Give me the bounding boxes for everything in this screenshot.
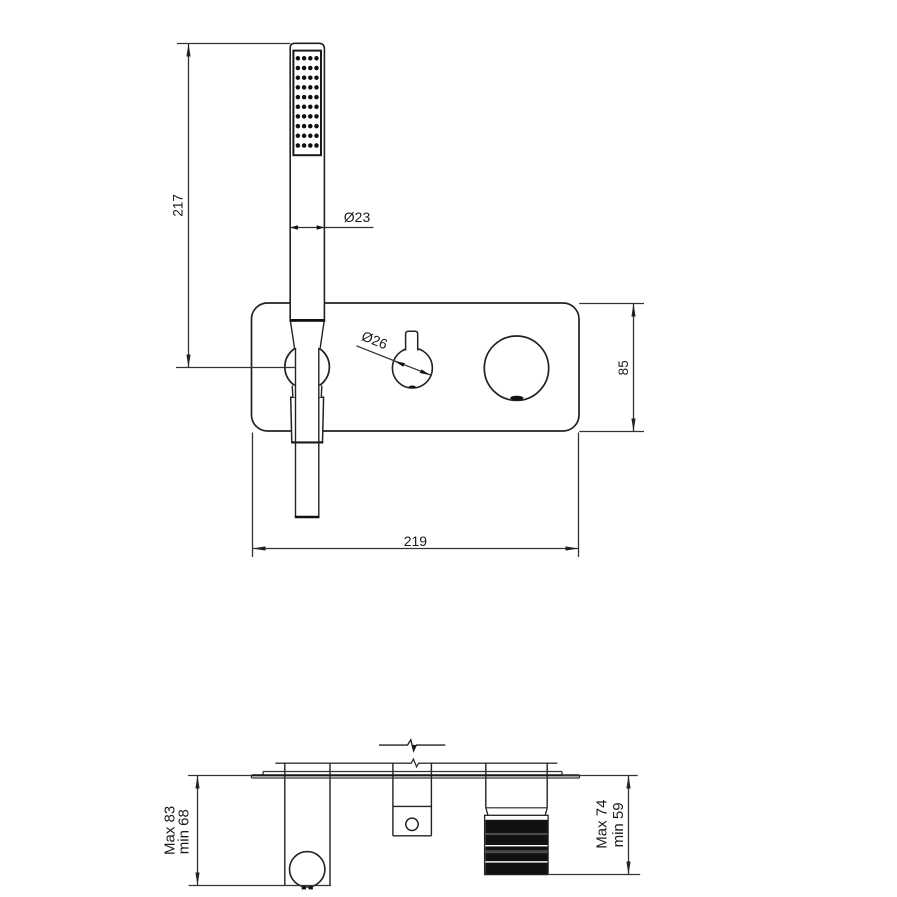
svg-text:217: 217: [170, 194, 185, 217]
svg-text:min 59: min 59: [610, 802, 627, 847]
svg-text:85: 85: [616, 360, 631, 375]
svg-text:Ø23: Ø23: [344, 209, 371, 225]
svg-text:Max 74: Max 74: [594, 799, 611, 848]
svg-text:219: 219: [404, 533, 428, 549]
svg-text:min 68: min 68: [175, 809, 192, 854]
